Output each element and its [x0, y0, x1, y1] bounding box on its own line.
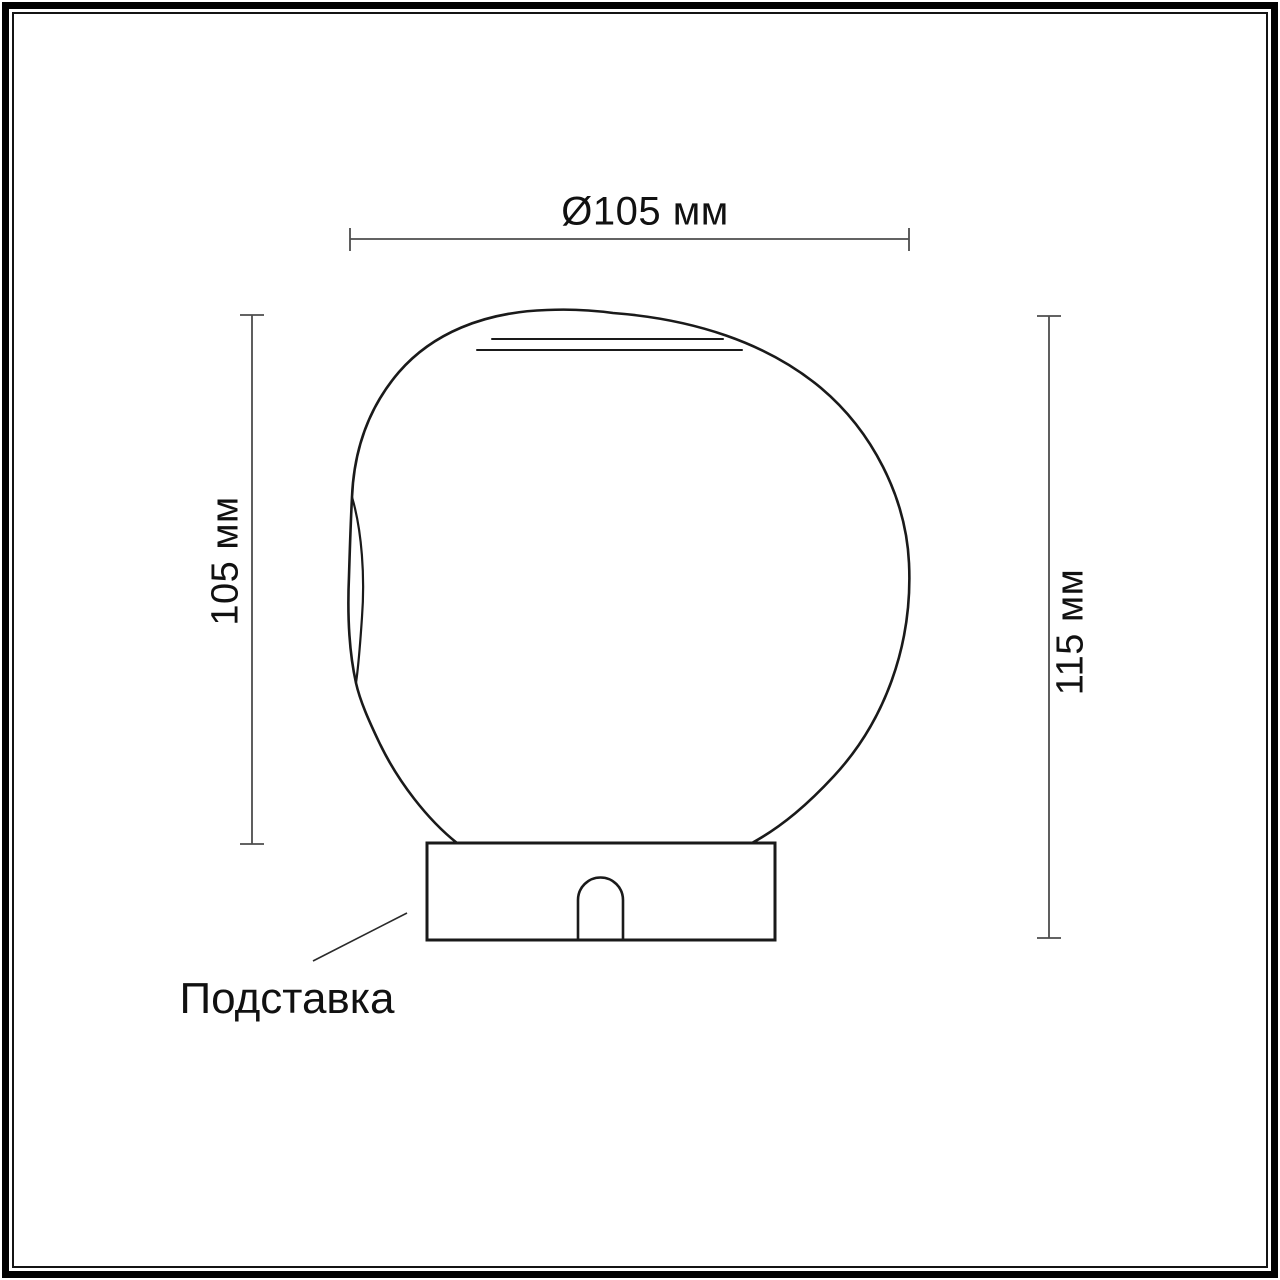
drawing-canvas: Ø105 мм 105 мм 115 мм Подставка [0, 0, 1280, 1280]
lamp-base [427, 843, 775, 940]
lamp-shade-outline [348, 310, 909, 843]
shade-blob-path [348, 310, 909, 843]
diameter-dimension-label: Ø105 мм [561, 190, 728, 235]
shade-height-dimension-label: 105 мм [205, 496, 248, 625]
base-rectangle [427, 843, 775, 940]
base-annotation-label: Подставка [180, 974, 395, 1024]
shade-dent-path [352, 497, 363, 683]
base-leader-line [313, 913, 407, 961]
total-height-dimension-label: 115 мм [1050, 569, 1093, 695]
